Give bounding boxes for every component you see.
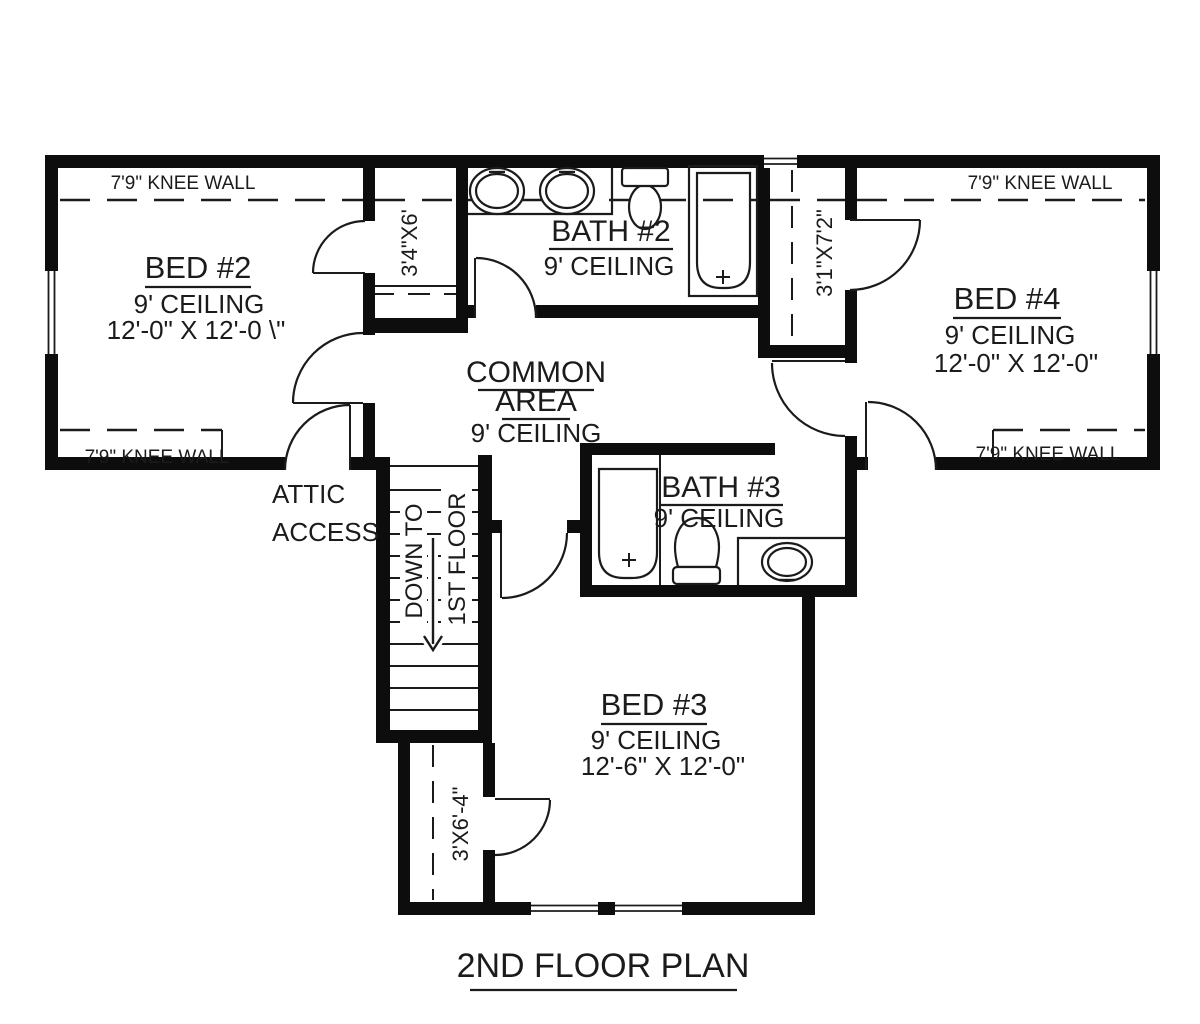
door-bed4-entry [866, 402, 936, 470]
knee-wall-label-top-right: 7'9" KNEE WALL [968, 173, 1113, 194]
bed2-name: BED #2 [145, 250, 252, 285]
door-bed2-entry [293, 333, 363, 403]
page-title: 2ND FLOOR PLAN [457, 947, 750, 985]
bath2-name: BATH #2 [551, 215, 671, 248]
closet2-dims: 3'1"X7'2" [812, 209, 837, 297]
stairs-label-line2: 1ST FLOOR [444, 493, 471, 626]
floor-plan-page: DOWN TO 1ST FLOOR [0, 0, 1200, 1024]
closet1-dims: 3'4"X6' [397, 209, 422, 277]
attic-access-line2: ACCESS [272, 517, 379, 547]
knee-wall-label-bottom-right: 7'9" KNEE WALL [976, 444, 1121, 465]
door-bed3-closet [495, 799, 550, 855]
window-top-closet [764, 155, 797, 168]
labels: BED #2 9' CEILING 12'-0" X 12'-0 \" BATH… [85, 173, 1121, 990]
closet3-dims: 3'X6'-4" [448, 787, 473, 862]
bath3-vanity [738, 538, 845, 585]
window-bed4-right [1147, 267, 1160, 358]
door-bath3-vestibule [772, 361, 845, 436]
floor-plan-drawing: DOWN TO 1ST FLOOR [0, 0, 1200, 1024]
bed4-ceiling: 9' CEILING [945, 320, 1076, 350]
door-bed3-entry [501, 533, 567, 598]
door-bath2 [475, 258, 536, 318]
bed4-dims: 12'-0" X 12'-0" [934, 348, 1098, 378]
bath2-ceiling: 9' CEILING [544, 251, 675, 281]
knee-wall-label-top-left: 7'9" KNEE WALL [111, 173, 256, 194]
bed3-dims: 12'-6" X 12'-0" [581, 751, 745, 781]
door-attic-access [285, 405, 350, 470]
door-bed2-closet [313, 221, 365, 273]
bath2-vanity [468, 168, 612, 214]
bath3-name: BATH #3 [661, 471, 781, 504]
knee-wall-label-bottom-left: 7'9" KNEE WALL [85, 447, 230, 468]
stairs-label-line1: DOWN TO [401, 503, 428, 618]
bed2-dims: 12'-0" X 12'-0 \" [107, 315, 286, 345]
attic-access-line1: ATTIC [272, 479, 345, 509]
bed4-name: BED #4 [954, 281, 1061, 316]
bath3-tub [599, 455, 660, 585]
bath3-ceiling: 9' CEILING [654, 503, 785, 533]
common-area-ceiling: 9' CEILING [471, 418, 602, 448]
door-bed4-closet [850, 220, 920, 290]
window-bed2-left [45, 267, 58, 358]
common-area-line2: AREA [495, 385, 577, 418]
bed3-name: BED #3 [601, 687, 708, 722]
bath2-tub [689, 166, 757, 296]
stairs: DOWN TO 1ST FLOOR [390, 466, 478, 710]
